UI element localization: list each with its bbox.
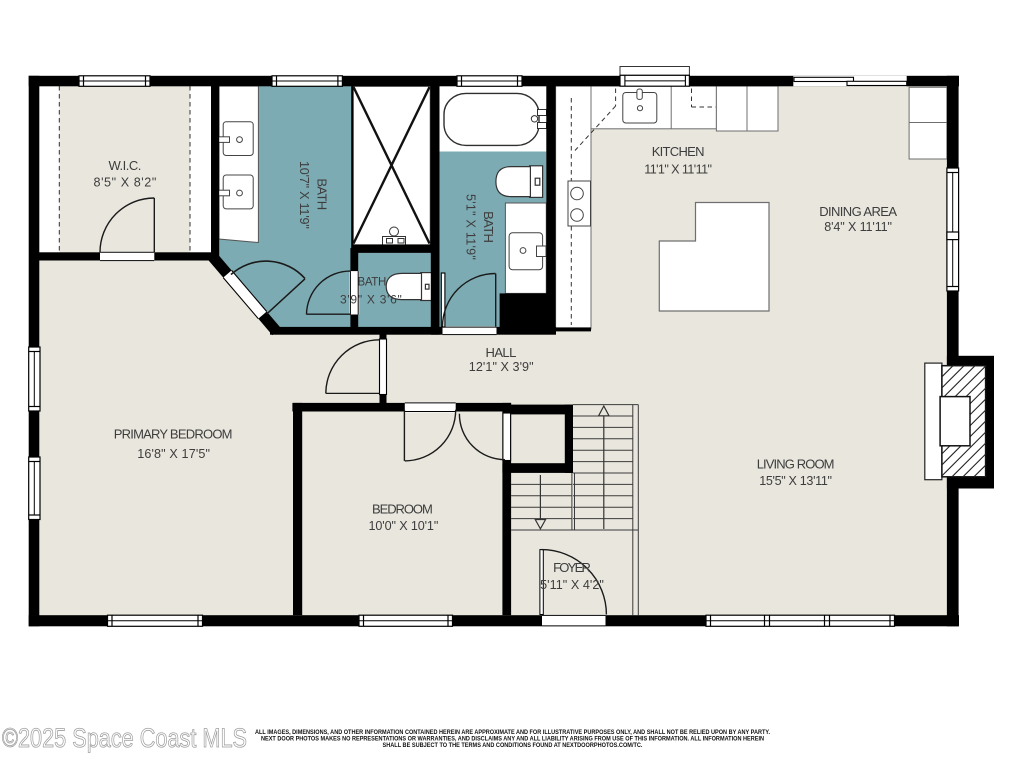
svg-text:12'1" X 3'9": 12'1" X 3'9"	[469, 360, 534, 374]
svg-text:16'8" X 17'5": 16'8" X 17'5"	[137, 447, 210, 461]
svg-text:8'5" X 8'2": 8'5" X 8'2"	[94, 176, 157, 190]
svg-text:11'1" X 11'11": 11'1" X 11'11"	[644, 162, 712, 176]
svg-text:KITCHEN: KITCHEN	[652, 144, 705, 159]
svg-text:10'0" X 10'1": 10'0" X 10'1"	[369, 519, 439, 533]
svg-text:BATH: BATH	[481, 211, 496, 243]
svg-text:NEXT DOOR PHOTOS MAKES NO REPR: NEXT DOOR PHOTOS MAKES NO REPRESENTATION…	[261, 737, 764, 743]
svg-text:5'11" X 4'2": 5'11" X 4'2"	[540, 578, 604, 592]
svg-text:5'1" X 11'9": 5'1" X 11'9"	[463, 194, 477, 260]
svg-text:HALL: HALL	[486, 345, 517, 360]
svg-text:PRIMARY BEDROOM: PRIMARY BEDROOM	[114, 426, 233, 441]
svg-text:DINING AREA: DINING AREA	[819, 204, 897, 219]
svg-text:ALL IMAGES, DIMENSIONS, AND OT: ALL IMAGES, DIMENSIONS, AND OTHER INFORM…	[255, 730, 770, 736]
svg-text:15'5" X 13'11": 15'5" X 13'11"	[759, 474, 832, 488]
svg-text:FOYER: FOYER	[553, 560, 591, 575]
svg-text:©2025 Space Coast MLS: ©2025 Space Coast MLS	[2, 723, 247, 753]
svg-text:BATH: BATH	[314, 178, 329, 210]
svg-text:SHALL BE SUBJECT TO THE TERMS: SHALL BE SUBJECT TO THE TERMS AND CONDIT…	[383, 743, 643, 749]
svg-text:8'4" X 11'11": 8'4" X 11'11"	[824, 220, 892, 234]
svg-text:BEDROOM: BEDROOM	[372, 501, 433, 516]
svg-text:W.I.C.: W.I.C.	[109, 158, 142, 173]
svg-text:10'7" X 11'9": 10'7" X 11'9"	[297, 161, 311, 229]
svg-text:3'9" X 3'6": 3'9" X 3'6"	[340, 293, 402, 307]
svg-text:BATH: BATH	[358, 277, 387, 289]
svg-text:LIVING ROOM: LIVING ROOM	[757, 456, 835, 471]
